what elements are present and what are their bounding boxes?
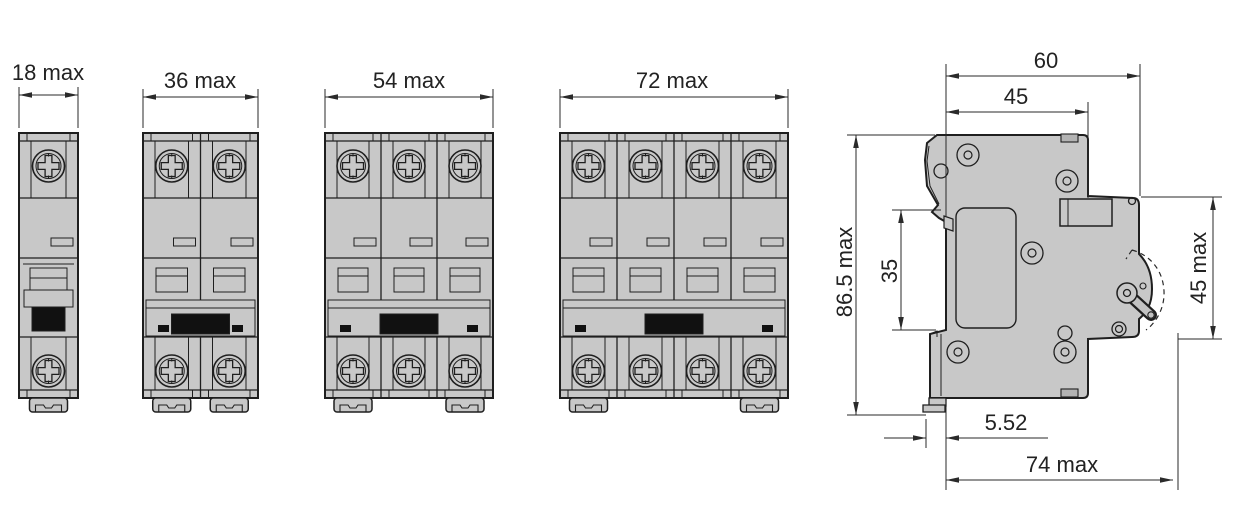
toggle-window <box>687 268 718 292</box>
toggle-window <box>573 268 604 292</box>
toggle-window <box>214 268 246 292</box>
mcb-dimension-drawing-page: 18 max 36 max 54 max 72 max 60 45 86.5 m… <box>0 0 1235 525</box>
toggle-handle <box>380 314 438 334</box>
breaker-1pole-front <box>19 133 78 412</box>
toggle-latch-mark <box>340 325 351 332</box>
side-notch <box>590 238 612 246</box>
dim-label-depth-to-step: 45 <box>1004 84 1028 109</box>
side-notch <box>354 238 376 246</box>
dim-label-din-rail: 35 <box>877 259 902 283</box>
side-notch <box>231 238 253 246</box>
din-clip-foot <box>923 405 945 412</box>
breaker-2pole-front <box>143 133 258 412</box>
side-notch <box>466 238 488 246</box>
dim-label-width-2p: 36 max <box>164 68 236 93</box>
toggle-handle <box>172 314 230 334</box>
toggle-handle <box>32 307 65 331</box>
breaker-4pole-front <box>560 133 788 412</box>
dim-label-front-face-height: 45 max <box>1186 232 1211 304</box>
toggle-window <box>394 268 424 292</box>
side-notch <box>704 238 726 246</box>
toggle-latch-mark <box>575 325 586 332</box>
dim-label-width-3p: 54 max <box>373 68 445 93</box>
side-notch <box>410 238 432 246</box>
toggle-window <box>630 268 661 292</box>
toggle-window <box>30 268 67 290</box>
toggle-window <box>156 268 188 292</box>
label-recess <box>956 208 1016 328</box>
toggle-window <box>744 268 775 292</box>
dim-label-clip-protrusion: 5.52 <box>985 410 1028 435</box>
toggle-pivot <box>1117 283 1137 303</box>
toggle-window <box>338 268 368 292</box>
dim-label-height-overall: 86.5 max <box>832 227 857 318</box>
breaker-3pole-front <box>325 133 493 412</box>
dim-label-width-1p: 18 max <box>12 60 84 85</box>
dim-label-width-4p: 72 max <box>636 68 708 93</box>
toggle-collar <box>24 290 73 307</box>
mcb-dimension-drawing: 18 max 36 max 54 max 72 max 60 45 86.5 m… <box>0 0 1235 525</box>
side-notch <box>174 238 196 246</box>
top-tab <box>1061 134 1078 142</box>
dim-label-depth-with-toggle: 74 max <box>1026 452 1098 477</box>
side-notch <box>761 238 783 246</box>
rail-claw <box>944 216 953 231</box>
side-notch <box>51 238 73 246</box>
toggle-latch-mark <box>232 325 243 332</box>
toggle-latch-mark <box>158 325 169 332</box>
toggle-window <box>450 268 480 292</box>
side-notch <box>647 238 669 246</box>
toggle-latch-mark <box>467 325 478 332</box>
bottom-tab <box>1061 389 1078 397</box>
dim-label-depth-body: 60 <box>1034 48 1058 73</box>
toggle-handle <box>645 314 703 334</box>
toggle-latch-mark <box>762 325 773 332</box>
